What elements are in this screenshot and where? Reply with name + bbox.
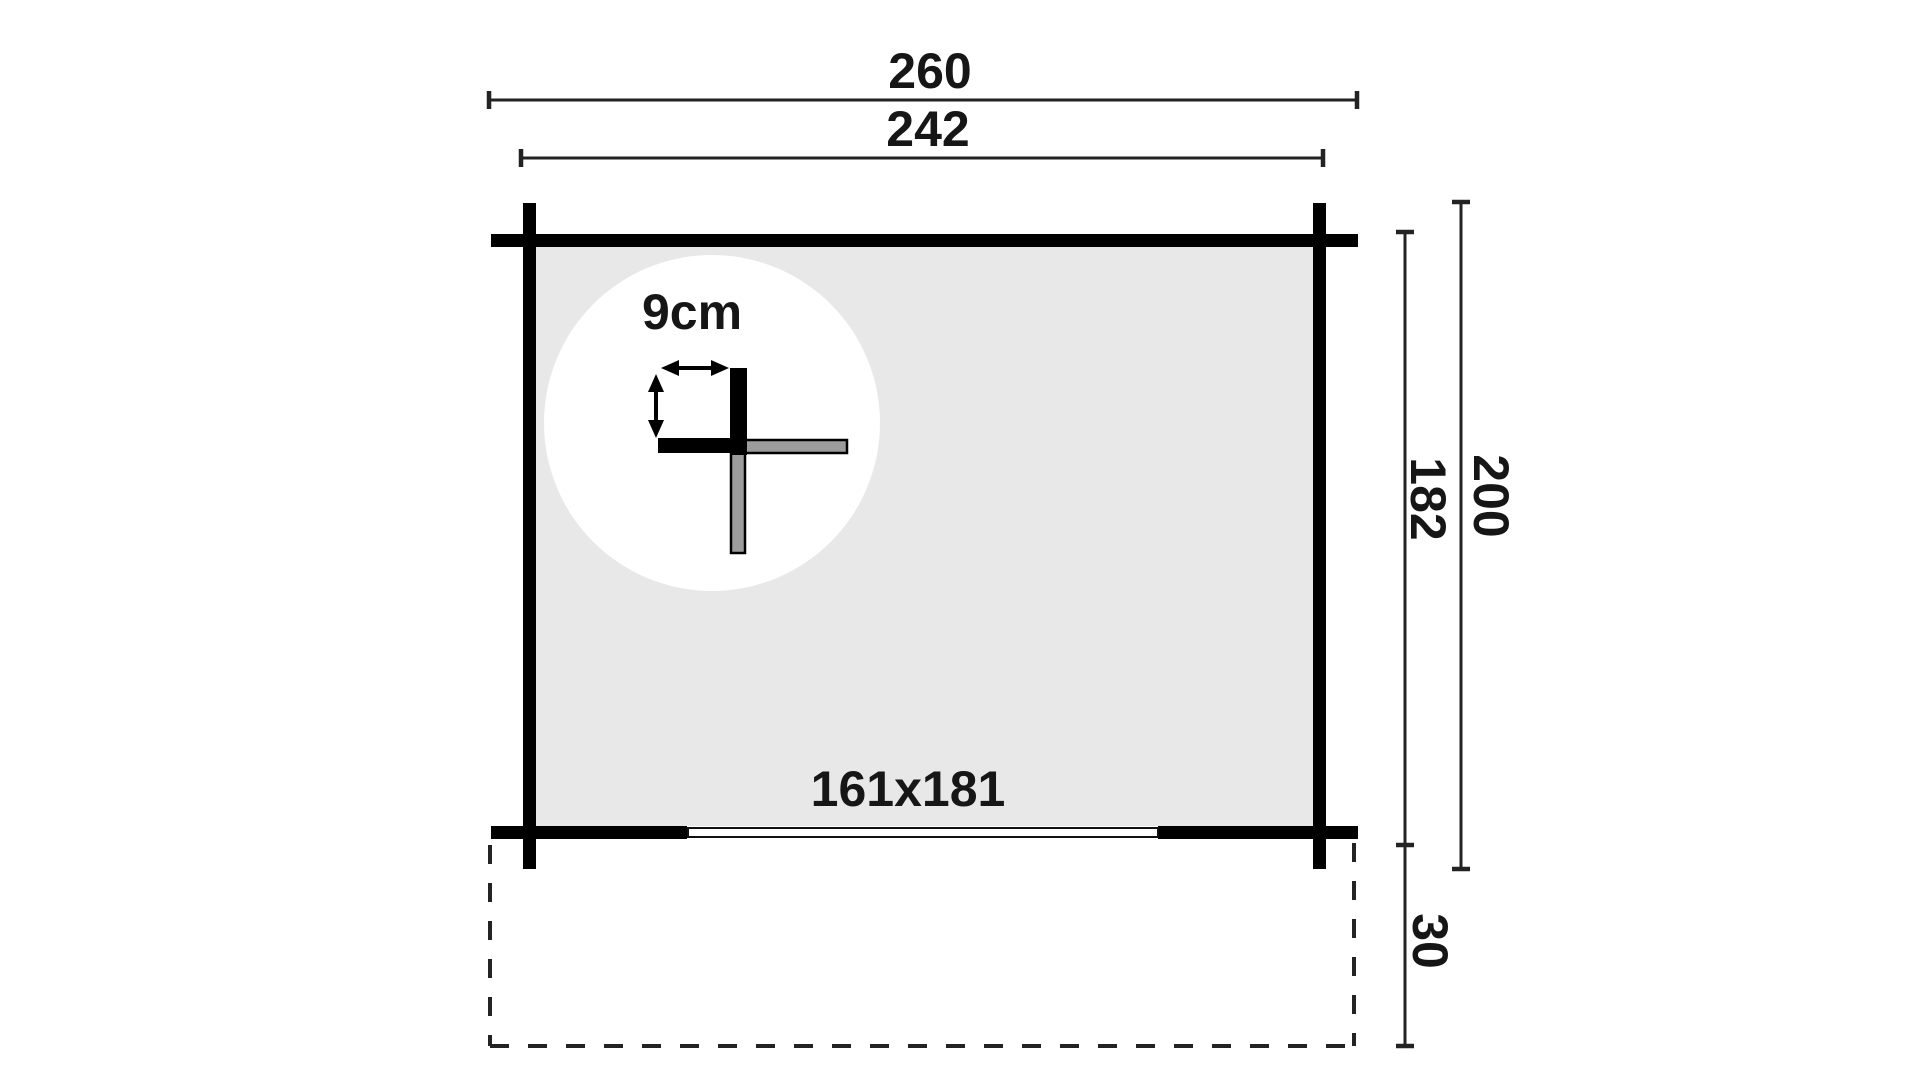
wall-bottom-left: [491, 826, 687, 839]
wall-thickness-label: 9cm: [642, 284, 742, 340]
door-threshold: [688, 828, 1158, 837]
wall-detail-callout: 9cm: [544, 255, 880, 591]
outer-width-label: 260: [888, 43, 971, 99]
floor-plan-drawing: 9cm 161x181 260 242: [0, 0, 1920, 1080]
outer-depth-label: 200: [1463, 454, 1519, 537]
wall-right: [1313, 203, 1326, 869]
door-size-label: 161x181: [811, 761, 1006, 817]
porch-outline: [490, 843, 1356, 1046]
wall-left: [523, 203, 536, 869]
floor-plan-canvas: 9cm 161x181 260 242: [0, 0, 1920, 1080]
detail-log-gray-vertical: [731, 445, 745, 553]
inner-width-label: 242: [886, 101, 969, 157]
inner-depth-label: 182: [1400, 457, 1456, 540]
wall-top: [491, 234, 1358, 247]
detail-log-black-horizontal: [658, 438, 747, 453]
porch-depth-label: 30: [1402, 913, 1458, 969]
detail-log-gray-horizontal: [745, 440, 847, 453]
wall-bottom-right: [1158, 826, 1358, 839]
